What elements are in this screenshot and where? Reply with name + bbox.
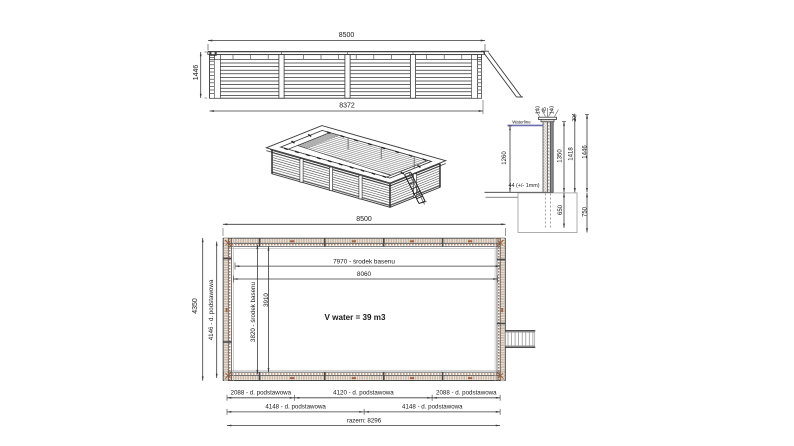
- svg-text:204: 204: [572, 113, 578, 122]
- svg-text:3910: 3910: [263, 293, 270, 307]
- svg-text:razem: 8296: razem: 8296: [347, 417, 382, 424]
- svg-text:1446: 1446: [193, 65, 200, 81]
- svg-text:1350: 1350: [558, 149, 564, 163]
- svg-text:1418: 1418: [569, 147, 575, 161]
- svg-text:4350: 4350: [192, 298, 199, 314]
- svg-text:44 (+/- 1mm): 44 (+/- 1mm): [508, 183, 539, 189]
- svg-text:7970 - środek basenu: 7970 - środek basenu: [333, 258, 395, 265]
- svg-text:Waterline: Waterline: [512, 120, 531, 125]
- svg-text:45: 45: [542, 107, 548, 113]
- svg-text:8500: 8500: [339, 32, 355, 39]
- svg-text:140: 140: [550, 106, 556, 115]
- svg-text:4146 - d. podstawowa: 4146 - d. podstawowa: [208, 279, 215, 340]
- svg-text:650: 650: [558, 204, 564, 215]
- svg-text:4120 - d. podstawowa: 4120 - d. podstawowa: [333, 390, 394, 397]
- svg-text:1446: 1446: [583, 145, 589, 159]
- svg-text:8500: 8500: [356, 216, 372, 223]
- svg-text:1260: 1260: [502, 151, 508, 165]
- svg-text:750: 750: [583, 206, 589, 217]
- svg-text:3820 - środek basenu: 3820 - środek basenu: [250, 282, 257, 342]
- svg-text:V water = 39 m3: V water = 39 m3: [325, 313, 386, 322]
- svg-text:2088 - d. podstawowa: 2088 - d. podstawowa: [231, 390, 292, 397]
- svg-text:4148 - d. podstawowa: 4148 - d. podstawowa: [265, 404, 326, 411]
- svg-text:2088 - d. podstawowa: 2088 - d. podstawowa: [436, 390, 497, 397]
- svg-text:8372: 8372: [339, 103, 355, 110]
- svg-text:8060: 8060: [357, 271, 372, 278]
- svg-text:4148 - d. podstawowa: 4148 - d. podstawowa: [402, 404, 463, 411]
- svg-text:140: 140: [536, 106, 542, 115]
